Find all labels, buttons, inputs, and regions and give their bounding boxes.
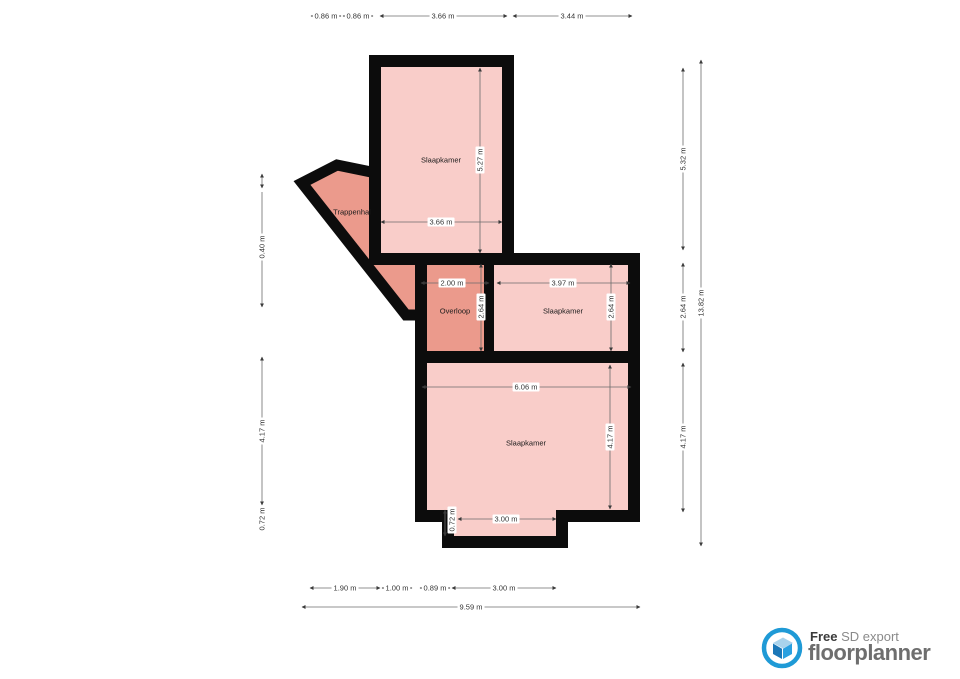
dim-top-1: 0.86 m [313,12,340,21]
dim-bottom-1: 1.90 m [332,584,359,593]
dim-overloop-width: 2.00 m [439,279,466,288]
dim-top-4: 3.44 m [559,12,586,21]
dim-top-2: 0.86 m [345,12,372,21]
dim-right-2: 2.64 m [679,294,688,321]
dim-bottom-4: 3.00 m [491,584,518,593]
room-label-overloop: Overloop [440,307,470,316]
room-label-slaapkamer-mid: Slaapkamer [543,307,583,316]
room-label-slaapkamer-bottom: Slaapkamer [506,439,546,448]
dim-slaapkamer-mid-width: 3.97 m [550,279,577,288]
dim-bottom-3: 0.89 m [422,584,449,593]
dim-top-3: 3.66 m [430,12,457,21]
floorplan-canvas [0,0,960,679]
room-label-trappenhal: Trappenhal [333,208,371,217]
room-label-slaapkamer-top: Slaapkamer [421,156,461,165]
dim-left-1: 0.40 m [258,234,267,261]
dim-slaapkamer-bottom-notch-height: 0.72 m [448,507,457,534]
dim-slaapkamer-top-width: 3.66 m [428,218,455,227]
dim-left-3: 0.72 m [258,506,267,533]
dim-overloop-height: 2.64 m [477,294,486,321]
dim-slaapkamer-bottom-height: 4.17 m [606,424,615,451]
dim-bottom-2: 1.00 m [384,584,411,593]
dim-left-2: 4.17 m [258,418,267,445]
brand-name: floorplanner [808,640,930,666]
dim-right-1: 5.32 m [679,146,688,173]
dim-slaapkamer-top-height: 5.27 m [476,147,485,174]
dim-right-total: 13.82 m [697,287,706,318]
dim-right-3: 4.17 m [679,424,688,451]
dim-bottom-total: 9.59 m [458,603,485,612]
dim-slaapkamer-bottom-notch-width: 3.00 m [493,515,520,524]
dim-slaapkamer-mid-height: 2.64 m [607,294,616,321]
dim-slaapkamer-bottom-width: 6.06 m [513,383,540,392]
floorplanner-logo: Free SD export floorplanner [758,623,948,673]
floorplanner-house-icon [760,626,804,670]
